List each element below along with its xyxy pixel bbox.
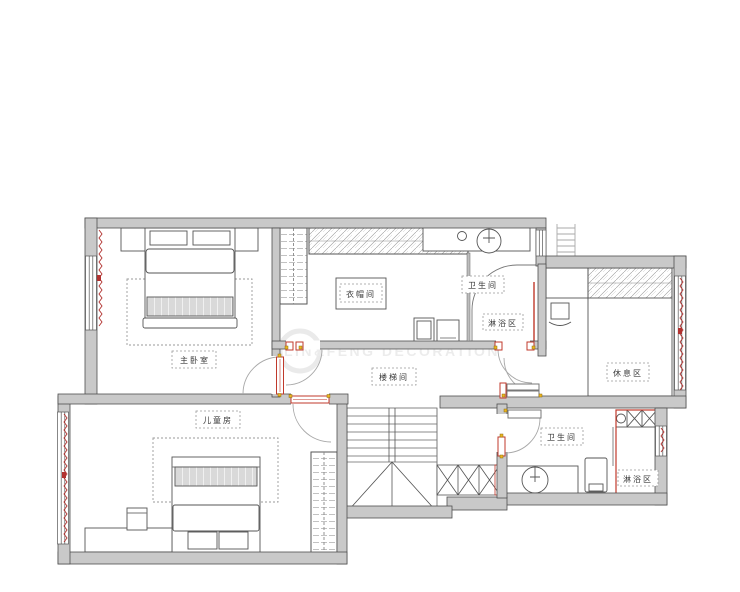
- floor-plan-canvas: LIN&FENG DECORATION: [0, 0, 740, 592]
- window-closet: [536, 230, 546, 256]
- stair-railing: [437, 465, 500, 495]
- wall: [337, 396, 347, 564]
- room-label-text: 儿童房: [203, 415, 233, 425]
- door-slide-leaf: [507, 384, 539, 390]
- wardrobe-kids: [311, 452, 337, 553]
- vanity-upper: [423, 227, 530, 253]
- exterior-ladder-mark: [557, 224, 575, 256]
- kids-chair-icon: [127, 508, 147, 530]
- room-label-shower-upper: 淋浴区: [483, 314, 523, 330]
- room-label-kids-room: 儿童房: [196, 411, 240, 428]
- master-bed: [121, 228, 258, 328]
- wall: [447, 497, 507, 510]
- room-label-text: 淋浴区: [488, 318, 518, 328]
- rest-area-bed: [588, 298, 672, 396]
- room-label-text: 淋浴区: [623, 474, 653, 484]
- headboard-cushion: [146, 249, 234, 273]
- kids-bed: [172, 457, 260, 553]
- wall: [538, 264, 546, 356]
- stairs: [347, 408, 437, 512]
- pillow: [193, 231, 230, 245]
- nightstand-right: [233, 228, 258, 251]
- room-label-master-bedroom: 主卧室: [172, 351, 216, 368]
- door-arc-bath-lower: [505, 418, 540, 453]
- floor-plan: LIN&FENG DECORATION: [0, 0, 740, 592]
- toilet-lower: [585, 458, 607, 492]
- room-label-text: 卫生间: [468, 280, 498, 290]
- room-label-text: 衣帽间: [346, 289, 376, 299]
- wall: [546, 256, 686, 268]
- footboard: [143, 318, 237, 328]
- wall: [440, 396, 686, 408]
- wall: [655, 408, 667, 505]
- door-arc-kids: [293, 404, 331, 442]
- door-leaf-bath-lower-top: [508, 410, 541, 418]
- room-label-text: 主卧室: [180, 355, 210, 365]
- partition-wall: [467, 253, 470, 341]
- kids-cabinet: [85, 528, 172, 552]
- nightstand-left: [121, 228, 146, 251]
- room-label-text: 休息区: [613, 368, 643, 378]
- room-label-stairwell: 楼梯间: [372, 368, 416, 385]
- desk: [546, 268, 588, 298]
- room-label-cloakroom: 衣帽间: [340, 284, 382, 302]
- vanity-lower: [506, 466, 578, 494]
- window-master: [86, 256, 97, 330]
- wall: [85, 218, 546, 228]
- door-slide-leaf: [507, 391, 539, 397]
- pillow: [150, 231, 187, 245]
- room-label-text: 卫生间: [547, 432, 577, 442]
- wardrobe-rest-area: [588, 268, 672, 299]
- blanket-band: [147, 297, 233, 316]
- wardrobe-closet-west: [280, 228, 307, 304]
- wall: [337, 506, 452, 518]
- door-arc-bath-upper: [498, 349, 532, 383]
- room-label-rest-area: 休息区: [607, 363, 649, 381]
- room-label-bathroom-lower: 卫生间: [541, 428, 583, 445]
- room-label-bathroom-upper: 卫生间: [462, 276, 504, 293]
- room-label-text: 楼梯间: [379, 372, 409, 382]
- wall: [58, 552, 347, 564]
- wall: [498, 493, 667, 505]
- desk-chair-icon: [549, 303, 571, 326]
- door-leaf-bath-lower: [498, 437, 505, 456]
- faucet-icon: [458, 232, 467, 241]
- room-label-shower-lower: 淋浴区: [618, 470, 658, 486]
